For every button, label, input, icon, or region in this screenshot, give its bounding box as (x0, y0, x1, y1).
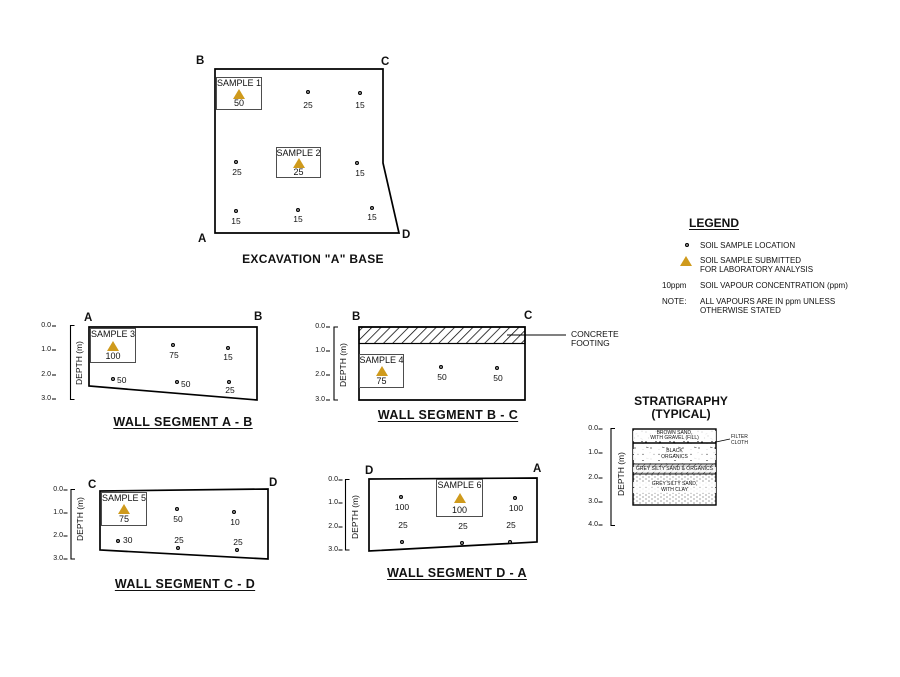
vapour-value: 15 (290, 215, 306, 224)
sample-2-value: 25 (293, 168, 303, 177)
vapour-value: 25 (171, 536, 187, 545)
vapour-value: 25 (455, 522, 471, 531)
base-corner-a: A (198, 234, 206, 245)
sample-1-label: SAMPLE 1 (217, 79, 261, 88)
sample-6-box: SAMPLE 6 100 (436, 479, 483, 517)
strat-layer1-label-line2: WITH GRAVEL (FILL) (633, 436, 716, 441)
depth-bracket-strat (611, 429, 615, 526)
wall-ab-corner-b: B (254, 312, 262, 323)
strat-layer3-label: GREY SILTY SAND & ORGANICS (633, 467, 716, 472)
depth-ticks-strat (599, 429, 603, 525)
legend-vapour-text: SOIL VAPOUR CONCENTRATION (ppm) (700, 281, 848, 290)
soil-sample-dot (175, 507, 179, 511)
legend-soil-sample-location: SOIL SAMPLE LOCATION (700, 241, 795, 250)
sample-2-box: SAMPLE 2 25 (276, 147, 321, 178)
depth-axis-label: DEPTH (m) (75, 491, 85, 547)
vapour-value: 50 (434, 373, 450, 382)
stratigraphy-title-line2: (TYPICAL) (616, 408, 746, 420)
sample-4-box: SAMPLE 4 75 (359, 354, 404, 388)
sample-6-label: SAMPLE 6 (437, 481, 481, 490)
depth-tick-label: 0.0 (49, 486, 63, 493)
vapour-value: 15 (352, 169, 368, 178)
legend-note-key: NOTE: (662, 297, 686, 306)
wall-cd-title: WALL SEGMENT C - D (100, 577, 270, 591)
vapour-value: 50 (181, 380, 197, 389)
soil-sample-dot-icon (685, 243, 689, 247)
depth-ticks-bc (326, 327, 330, 400)
soil-sample-dot (116, 539, 120, 543)
sample-3-box: SAMPLE 3 100 (90, 328, 136, 363)
vapour-value: 15 (364, 213, 380, 222)
vapour-value: 15 (220, 353, 236, 362)
vapour-value: 50 (117, 376, 133, 385)
concrete-footing-hatch (359, 327, 525, 344)
vapour-value: 15 (352, 101, 368, 110)
sample-5-box: SAMPLE 5 75 (101, 492, 147, 526)
wall-da-corner-a: A (533, 464, 541, 475)
soil-sample-dot (226, 346, 230, 350)
vapour-value: 25 (222, 386, 238, 395)
depth-axis-label: DEPTH (m) (338, 337, 348, 393)
wall-cd-corner-d: D (269, 478, 277, 489)
depth-axis-label: DEPTH (m) (616, 446, 626, 502)
soil-sample-dot (234, 160, 238, 164)
site-figure-canvas: B C A D SAMPLE 1 50 SAMPLE 2 25 25 15 25… (0, 0, 900, 677)
vapour-value: 75 (166, 351, 182, 360)
wall-ab-title: WALL SEGMENT A - B (98, 415, 268, 429)
vapour-value: 50 (170, 515, 186, 524)
soil-sample-dot (495, 366, 499, 370)
soil-sample-dot (176, 546, 180, 550)
vapour-value: 25 (503, 521, 519, 530)
soil-sample-dot (306, 90, 310, 94)
soil-sample-dot (232, 510, 236, 514)
excavation-base-title: EXCAVATION "A" BASE (233, 252, 393, 266)
legend-note-line1: ALL VAPOURS ARE IN ppm UNLESS (700, 297, 835, 306)
soil-sample-dot (234, 209, 238, 213)
wall-da-title: WALL SEGMENT D - A (372, 566, 542, 580)
depth-tick-label: 0.0 (324, 476, 338, 483)
sample-6-value: 100 (452, 506, 467, 515)
vapour-value: 25 (229, 168, 245, 177)
vapour-value: 100 (393, 503, 411, 512)
soil-sample-dot (296, 208, 300, 212)
vapour-value: 15 (228, 217, 244, 226)
vapour-value: 10 (227, 518, 243, 527)
sample-1-value: 50 (234, 99, 244, 108)
base-corner-d: D (402, 230, 410, 241)
depth-tick-label: 2.0 (584, 474, 598, 481)
strat-layer2-label-line2: ORGANICS (633, 455, 716, 460)
soil-sample-dot (171, 343, 175, 347)
soil-sample-dot (508, 540, 512, 544)
depth-tick-label: 1.0 (311, 347, 325, 354)
depth-tick-label: 3.0 (37, 395, 51, 402)
stratigraphy-title-line1: STRATIGRAPHY (616, 395, 746, 407)
depth-tick-label: 0.0 (37, 322, 51, 329)
legend-submitted-line1: SOIL SAMPLE SUBMITTED (700, 256, 801, 265)
soil-sample-dot (400, 540, 404, 544)
depth-tick-label: 1.0 (49, 509, 63, 516)
sample-submitted-triangle-icon (118, 504, 130, 514)
soil-sample-dot (227, 380, 231, 384)
legend-vapour-key: 10ppm (662, 281, 686, 290)
depth-tick-label: 3.0 (584, 498, 598, 505)
depth-tick-label: 2.0 (311, 371, 325, 378)
legend-submitted-line2: FOR LABORATORY ANALYSIS (700, 265, 813, 274)
wall-ab-corner-a: A (84, 313, 92, 324)
depth-ticks-da (339, 480, 343, 550)
sample-submitted-triangle-icon (376, 366, 388, 376)
depth-tick-label: 0.0 (311, 323, 325, 330)
sample-4-label: SAMPLE 4 (359, 356, 403, 365)
wall-bc-title: WALL SEGMENT B - C (363, 408, 533, 422)
depth-tick-label: 2.0 (37, 371, 51, 378)
sample-1-box: SAMPLE 1 50 (216, 77, 262, 110)
soil-sample-dot (370, 206, 374, 210)
legend-title: LEGEND (689, 216, 739, 230)
wall-da-corner-d: D (365, 466, 373, 477)
strat-layer4-label-line2: WITH CLAY (633, 488, 716, 493)
depth-ticks-ab (52, 326, 56, 399)
depth-tick-label: 3.0 (311, 396, 325, 403)
sample-submitted-triangle-icon (107, 341, 119, 351)
vapour-value: 30 (123, 536, 139, 545)
depth-bracket-da (346, 480, 350, 551)
soil-sample-dot (111, 377, 115, 381)
legend-note-line2: OTHERWISE STATED (700, 306, 781, 315)
soil-sample-dot (358, 91, 362, 95)
sample-submitted-triangle-icon (233, 89, 245, 99)
wall-cd-corner-c: C (88, 480, 96, 491)
depth-ticks-cd (64, 490, 68, 559)
concrete-footing-label-line2: FOOTING (571, 339, 610, 348)
sample-4-value: 75 (376, 377, 386, 386)
soil-sample-dot (439, 365, 443, 369)
sample-3-value: 100 (105, 352, 120, 361)
filter-cloth-leader-line (716, 439, 730, 442)
depth-tick-label: 2.0 (324, 523, 338, 530)
depth-axis-label: DEPTH (m) (74, 335, 84, 391)
depth-tick-label: 1.0 (584, 449, 598, 456)
wall-bc-corner-c: C (524, 311, 532, 322)
depth-tick-label: 1.0 (324, 499, 338, 506)
depth-tick-label: 3.0 (324, 546, 338, 553)
sample-5-value: 75 (119, 515, 129, 524)
soil-sample-dot (235, 548, 239, 552)
sample-submitted-triangle-icon (454, 493, 466, 503)
sample-5-label: SAMPLE 5 (102, 494, 146, 503)
depth-tick-label: 4.0 (584, 521, 598, 528)
sample-3-label: SAMPLE 3 (91, 330, 135, 339)
soil-sample-dot (460, 541, 464, 545)
depth-tick-label: 2.0 (49, 532, 63, 539)
vapour-value: 50 (490, 374, 506, 383)
filter-cloth-label-line2: CLOTH (731, 441, 748, 446)
vapour-value: 25 (230, 538, 246, 547)
vapour-value: 25 (300, 101, 316, 110)
base-corner-c: C (381, 57, 389, 68)
depth-tick-label: 1.0 (37, 346, 51, 353)
soil-sample-dot (399, 495, 403, 499)
soil-sample-dot (175, 380, 179, 384)
depth-tick-label: 3.0 (49, 555, 63, 562)
vapour-value: 25 (395, 521, 411, 530)
depth-tick-label: 0.0 (584, 425, 598, 432)
vapour-value: 100 (507, 504, 525, 513)
wall-bc-corner-b: B (352, 312, 360, 323)
soil-sample-dot (513, 496, 517, 500)
sample-submitted-triangle-icon (680, 256, 692, 266)
base-corner-b: B (196, 56, 204, 67)
depth-axis-label: DEPTH (m) (350, 489, 360, 545)
soil-sample-dot (355, 161, 359, 165)
sample-2-label: SAMPLE 2 (276, 149, 320, 158)
